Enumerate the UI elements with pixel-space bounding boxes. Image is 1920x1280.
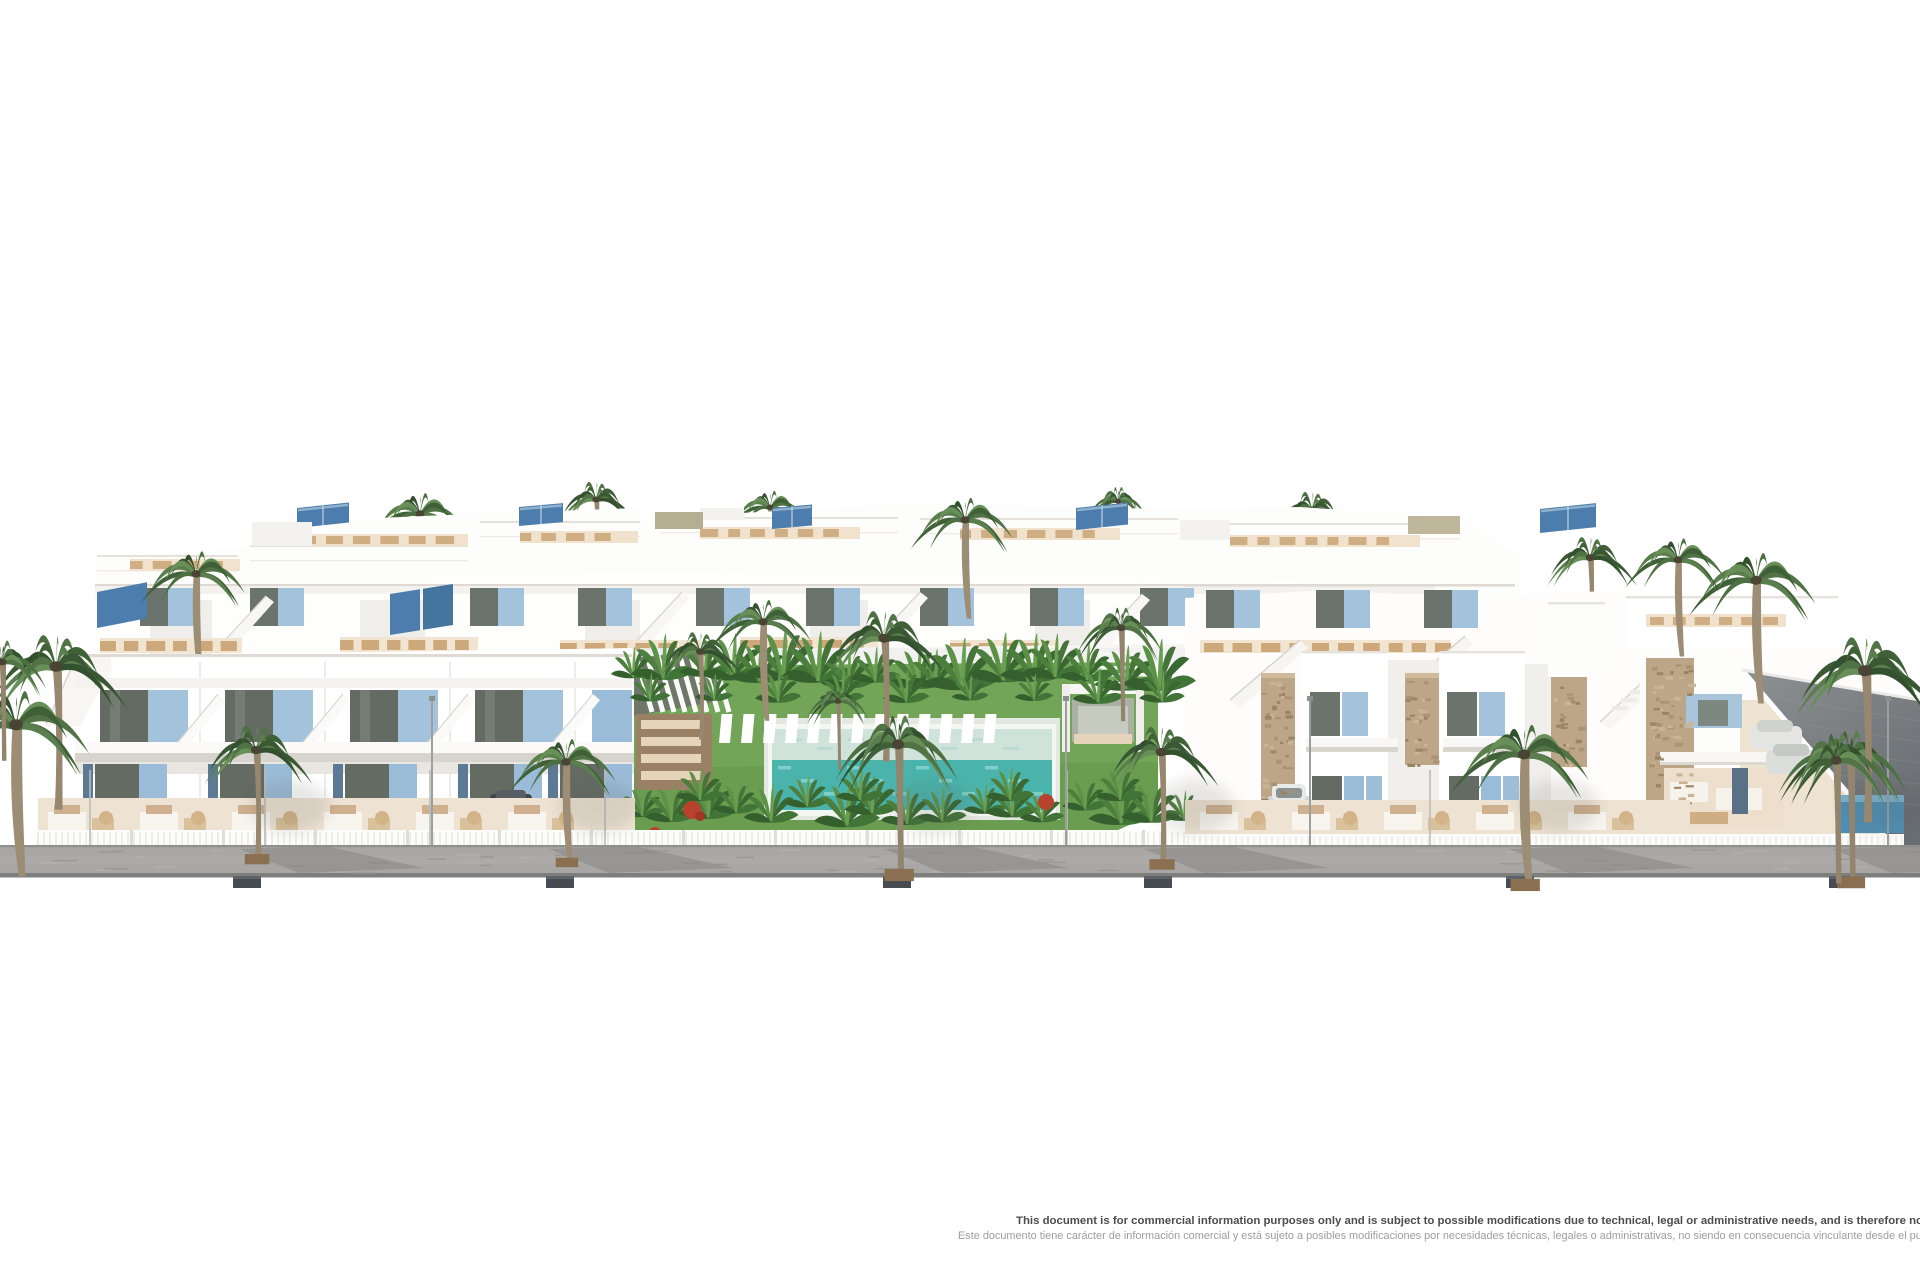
svg-text:This document is for commercia: This document is for commercial informat… — [1016, 1215, 1920, 1227]
svg-text:Este documento tiene carácter: Este documento tiene carácter de informa… — [958, 1230, 1920, 1242]
